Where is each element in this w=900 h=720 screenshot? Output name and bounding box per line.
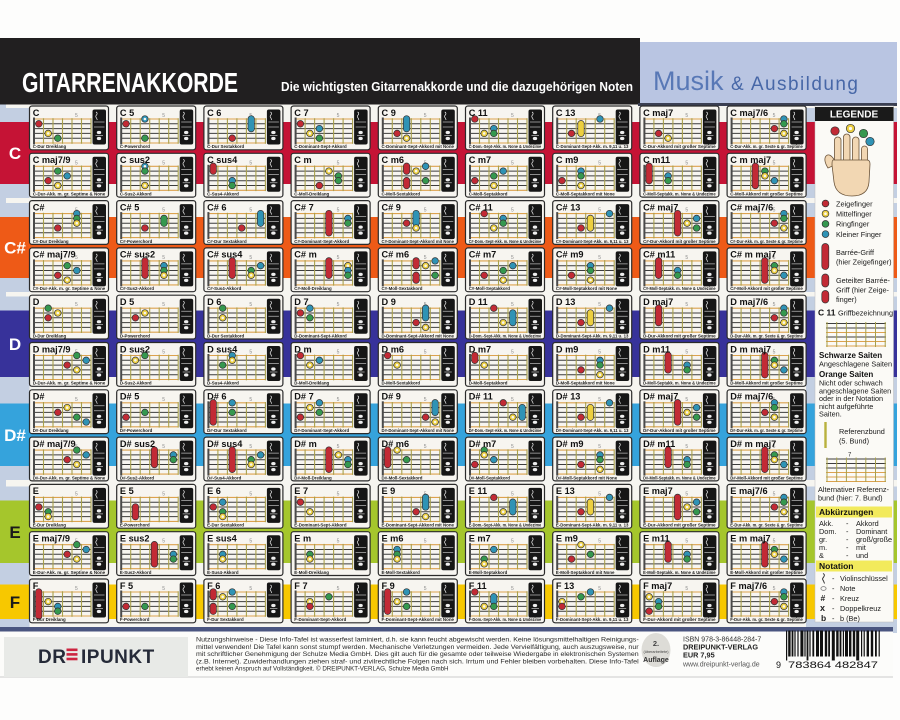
svg-text:D# maj7/6: D# maj7/6: [730, 392, 773, 402]
svg-text:C m maj7: C m maj7: [730, 155, 771, 165]
svg-text:C# m9: C# m9: [556, 250, 584, 260]
svg-text:Die wichtigsten Gitarrenakkord: Die wichtigsten Gitarrenakkorde und die …: [281, 79, 633, 94]
svg-text:www.dreipunkt-verlag.de: www.dreipunkt-verlag.de: [682, 662, 760, 669]
svg-text:C# m maj7: C# m maj7: [730, 250, 776, 260]
svg-text:C 5: C 5: [120, 108, 134, 118]
svg-text:D-Moll-Dreiklang: D-Moll-Dreiklang: [294, 381, 329, 386]
svg-text:D# m9: D# m9: [556, 439, 584, 449]
svg-text:E m9: E m9: [556, 534, 578, 544]
svg-text:D#-Dominant-Sept-Akkord mit No: D#-Dominant-Sept-Akkord mit None: [382, 428, 455, 433]
svg-text:E maj7: E maj7: [643, 486, 673, 496]
svg-text:E m: E m: [294, 534, 311, 544]
svg-text:E-Dur-Akk. m. gr. Sexte & gr.: E-Dur-Akk. m. gr. Sexte & gr. Septime: [730, 523, 803, 528]
svg-text:D-Moll-Septakk. m. None & Unde: D-Moll-Septakk. m. None & Undezime: [643, 381, 716, 386]
svg-text:D#-Moll-Septakk. m. None & Und: D#-Moll-Septakk. m. None & Undezime: [643, 475, 716, 480]
svg-text:E-Dominant-Sept-Akkord: E-Dominant-Sept-Akkord: [294, 523, 347, 528]
svg-text:C#: C#: [4, 239, 26, 258]
svg-text:D#-Dominant-Sept-Akkord: D#-Dominant-Sept-Akkord: [294, 428, 349, 433]
svg-text:C#-Dominant-Sept-Akkord: C#-Dominant-Sept-Akkord: [294, 239, 349, 244]
svg-text:D-Dominant-Sept-Akkord: D-Dominant-Sept-Akkord: [294, 333, 347, 338]
svg-text:E-Powerchord: E-Powerchord: [120, 523, 150, 528]
svg-text:D-Dur-Akkord mit großer Septim: D-Dur-Akkord mit großer Septime: [643, 333, 716, 338]
svg-text:C-Dom.-Sept-Akk. m. None & Und: C-Dom.-Sept-Akk. m. None & Undezime: [469, 144, 542, 149]
svg-text:F 9: F 9: [382, 581, 395, 591]
svg-text:C-Sus4-Akkord: C-Sus4-Akkord: [207, 192, 239, 197]
svg-text:C 13: C 13: [556, 108, 575, 118]
svg-text:E m7: E m7: [469, 534, 491, 544]
svg-text:D# 7: D# 7: [294, 392, 313, 402]
svg-text:D: D: [9, 335, 21, 354]
svg-text:C#-Dur Dreiklang: C#-Dur Dreiklang: [33, 239, 69, 244]
svg-text:D 13: D 13: [556, 297, 575, 307]
svg-text:Griffbezeichnung: Griffbezeichnung: [838, 309, 893, 318]
svg-text:C#-Moll-Sextakkord: C#-Moll-Sextakkord: [382, 286, 423, 291]
svg-text:F maj7/6: F maj7/6: [730, 581, 767, 591]
svg-text:C-Moll-Sextakkord: C-Moll-Sextakkord: [382, 192, 421, 197]
svg-text:D# 6: D# 6: [207, 392, 226, 402]
svg-text:b: b: [821, 613, 826, 623]
svg-text:C-Powerchord: C-Powerchord: [120, 144, 150, 149]
svg-text:&: &: [819, 551, 824, 560]
svg-text:D#-Moll-Dreiklang: D#-Moll-Dreiklang: [294, 475, 332, 480]
svg-text:Notation: Notation: [819, 561, 853, 571]
svg-text:E-Dominant-Sept-Akkord mit Non: E-Dominant-Sept-Akkord mit None: [382, 523, 455, 528]
svg-text:F 7: F 7: [294, 581, 307, 591]
svg-text:#: #: [821, 593, 826, 603]
svg-text:C#-Dur-Akkord mit großer Septi: C#-Dur-Akkord mit großer Septime: [643, 239, 716, 244]
svg-text:E-Moll-Dreiklang: E-Moll-Dreiklang: [294, 570, 329, 575]
svg-text:D# maj7: D# maj7: [643, 392, 678, 402]
svg-text:F-Dominant-Sept-Akkord mit Non: F-Dominant-Sept-Akkord mit None: [382, 617, 455, 622]
svg-text:E-Sus2-Akkord: E-Sus2-Akkord: [120, 570, 152, 575]
svg-text:E sus2: E sus2: [120, 534, 150, 544]
svg-text:D#-Moll-Septakkord mit None: D#-Moll-Septakkord mit None: [556, 475, 618, 480]
svg-text:C 6: C 6: [207, 108, 221, 118]
svg-text:D#-Dur-Akk. m. gr. Sexte & gr.: D#-Dur-Akk. m. gr. Sexte & gr. Septime: [730, 428, 803, 433]
svg-text:(überarbeitete): (überarbeitete): [643, 650, 669, 654]
svg-text:D-Moll-Septakkord: D-Moll-Septakkord: [469, 381, 508, 386]
svg-text:C#-Dur Sextakkord: C#-Dur Sextakkord: [207, 239, 247, 244]
svg-text:(5. Bund): (5. Bund): [839, 437, 869, 446]
svg-text:C-Dur Dreiklang: C-Dur Dreiklang: [33, 144, 67, 149]
svg-text:E m6: E m6: [382, 534, 404, 544]
svg-text:D# 5: D# 5: [120, 392, 139, 402]
svg-text:D#-Moll-Sextakkord: D#-Moll-Sextakkord: [382, 475, 423, 480]
svg-text:Ringfinger: Ringfinger: [836, 220, 870, 229]
svg-text:D: D: [33, 297, 40, 307]
svg-text:D#-Dur-Akk. m. gr. Septime & N: D#-Dur-Akk. m. gr. Septime & None: [33, 475, 106, 480]
svg-text:D#-Dom.-Sept-Akk. m. None & Un: D#-Dom.-Sept-Akk. m. None & Undezime: [469, 428, 542, 433]
svg-text:9: 9: [776, 660, 781, 670]
svg-text:C# m7: C# m7: [469, 250, 497, 260]
svg-text:F-Dom.-Sept-Akk. m. None & Und: F-Dom.-Sept-Akk. m. None & Undezime: [469, 617, 542, 622]
svg-text:D-Dur Dreiklang: D-Dur Dreiklang: [33, 333, 67, 338]
svg-text:Musik: Musik: [653, 66, 724, 96]
svg-text:Zeigefinger: Zeigefinger: [836, 199, 873, 208]
svg-text:Angeschlagene Saiten: Angeschlagene Saiten: [819, 360, 892, 369]
svg-text:D#-Dur Sextakkord: D#-Dur Sextakkord: [207, 428, 247, 433]
svg-text:D# 9: D# 9: [382, 392, 401, 402]
svg-text:und: und: [856, 551, 868, 560]
svg-text:C-Dominant-Sept-Akkord: C-Dominant-Sept-Akkord: [294, 144, 347, 149]
svg-text:LEGENDE: LEGENDE: [830, 110, 879, 121]
svg-text:mittel verwenden! Die Tafel ka: mittel verwenden! Die Tafel kann sonst s…: [196, 644, 639, 651]
svg-text:D#-Moll-Akkord mit großer Sept: D#-Moll-Akkord mit großer Septime: [730, 475, 803, 480]
svg-text:F: F: [33, 581, 39, 591]
svg-text:C sus2: C sus2: [120, 155, 150, 165]
svg-text:D# maj7/9: D# maj7/9: [33, 439, 76, 449]
svg-text:C-Dur-Akk. m. gr. Sexte & gr.: C-Dur-Akk. m. gr. Sexte & gr. Septime: [730, 144, 803, 149]
svg-text:C#-Dom.-Sept-Akk. m. None & Un: C#-Dom.-Sept-Akk. m. None & Undezime: [469, 239, 542, 244]
svg-text:C#-Sus4-Akkord: C#-Sus4-Akkord: [207, 286, 241, 291]
svg-text:D#-Powerchord: D#-Powerchord: [120, 428, 153, 433]
svg-text:C# 6: C# 6: [207, 202, 226, 212]
svg-text:erhebt keinen Anspruch auf Vol: erhebt keinen Anspruch auf Vollständigke…: [196, 666, 449, 673]
svg-text:C# maj7: C# maj7: [643, 202, 678, 212]
svg-text:D sus4: D sus4: [207, 344, 238, 354]
svg-text:& Ausbildung: & Ausbildung: [731, 74, 858, 95]
svg-text:D maj7: D maj7: [643, 297, 673, 307]
svg-text:C#-Moll-Akkord mit großer Sept: C#-Moll-Akkord mit großer Septime: [730, 286, 803, 291]
svg-text:D#-Dur-Akkord mit großer Septi: D#-Dur-Akkord mit großer Septime: [643, 428, 716, 433]
svg-text:F 5: F 5: [120, 581, 133, 591]
svg-text:D-Moll-Sextakkord: D-Moll-Sextakkord: [382, 381, 421, 386]
svg-text:(z.B. Internet). Zuwiderhandlu: (z.B. Internet). Zuwiderhandlungen ziehe…: [196, 658, 639, 665]
svg-text:E 5: E 5: [120, 486, 134, 496]
svg-text:C#-Sus2-Akkord: C#-Sus2-Akkord: [120, 286, 154, 291]
svg-text:D# 11: D# 11: [469, 392, 493, 402]
svg-text:C#-Dominant-Sept-Akkord mit No: C#-Dominant-Sept-Akkord mit None: [382, 239, 455, 244]
svg-text:F-Dominant-Sept-Akk. m. 9,11 u: F-Dominant-Sept-Akk. m. 9,11 u. 13: [556, 617, 629, 622]
svg-text:C# m6: C# m6: [382, 250, 410, 260]
svg-text:E-Sus4-Akkord: E-Sus4-Akkord: [207, 570, 239, 575]
svg-text:D-Dom.-Sept-Akk. m. None & Und: D-Dom.-Sept-Akk. m. None & Undezime: [469, 333, 542, 338]
svg-text:E-Dur-Akk. m. gr. Septime & No: E-Dur-Akk. m. gr. Septime & None: [33, 570, 106, 575]
svg-text:Nutzungshinweise - Diese Info-: Nutzungshinweise - Diese Info-Tafel ist …: [196, 637, 639, 644]
svg-text:C 7: C 7: [294, 108, 308, 118]
svg-text:D#-Dur Dreiklang: D#-Dur Dreiklang: [33, 428, 69, 433]
svg-text:C-Dur Sextakkord: C-Dur Sextakkord: [207, 144, 244, 149]
svg-text:D 6: D 6: [207, 297, 221, 307]
svg-text:D m6: D m6: [382, 344, 404, 354]
svg-text:F-Powerchord: F-Powerchord: [120, 617, 150, 622]
svg-text:C m11: C m11: [643, 155, 670, 165]
svg-text:C# 9: C# 9: [382, 202, 401, 212]
svg-text:D# m7: D# m7: [469, 439, 497, 449]
svg-text:Barrée-Griff: Barrée-Griff: [836, 248, 875, 257]
svg-text:E-Dur Dreiklang: E-Dur Dreiklang: [33, 523, 66, 528]
svg-text:Referenzbund: Referenzbund: [839, 427, 885, 436]
svg-text:D maj7/9: D maj7/9: [33, 344, 71, 354]
svg-text:E maj7/6: E maj7/6: [730, 486, 767, 496]
svg-text:D-Dur-Akk. m. gr. Septime & No: D-Dur-Akk. m. gr. Septime & None: [33, 381, 106, 386]
svg-text:C-Dominant-Sept-Akk. m. 9,11 u: C-Dominant-Sept-Akk. m. 9,11 u. 13: [556, 144, 629, 149]
svg-text:C#-Powerchord: C#-Powerchord: [120, 239, 153, 244]
svg-text:D-Sus4-Akkord: D-Sus4-Akkord: [207, 381, 239, 386]
svg-text:E-Moll-Septakk. m. None & Unde: E-Moll-Septakk. m. None & Undezime: [643, 570, 716, 575]
svg-text:D m maj7: D m maj7: [730, 344, 771, 354]
svg-text:E m11: E m11: [643, 534, 670, 544]
svg-text:C: C: [9, 144, 21, 163]
svg-text:C 11: C 11: [818, 308, 836, 318]
svg-text:D m7: D m7: [469, 344, 491, 354]
svg-text:E 6: E 6: [207, 486, 221, 496]
svg-text:D-Dur-Akk. m. gr. Sexte & gr.: D-Dur-Akk. m. gr. Sexte & gr. Septime: [730, 333, 803, 338]
svg-text:E-Dominant-Sept-Akk. m. 9,11 u: E-Dominant-Sept-Akk. m. 9,11 u. 13: [556, 523, 629, 528]
svg-text:D# sus4: D# sus4: [207, 439, 243, 449]
svg-text:C-Moll-Septakkord mit None: C-Moll-Septakkord mit None: [556, 192, 615, 197]
svg-text:Abkürzungen: Abkürzungen: [819, 507, 873, 517]
svg-text:D-Dominant-Sept-Akkord mit Non: D-Dominant-Sept-Akkord mit None: [382, 333, 455, 338]
svg-text:D# m maj7: D# m maj7: [730, 439, 776, 449]
svg-text:D-Sus2-Akkord: D-Sus2-Akkord: [120, 381, 152, 386]
svg-text:C#-Dominant-Sept-Akk. m. 9,11: C#-Dominant-Sept-Akk. m. 9,11 u. 13: [556, 239, 629, 244]
svg-text:C-Dur-Akkord mit großer Septim: C-Dur-Akkord mit großer Septime: [643, 144, 716, 149]
svg-text:D# sus2: D# sus2: [120, 439, 155, 449]
svg-text:2.: 2.: [653, 639, 659, 648]
svg-text:E 7: E 7: [294, 486, 308, 496]
svg-text:F-Dur Dreiklang: F-Dur Dreiklang: [33, 617, 66, 622]
svg-text:Auflage: Auflage: [643, 657, 669, 664]
svg-text:783864 482847: 783864 482847: [788, 660, 878, 670]
svg-text:D#-Moll-Septakkord: D#-Moll-Septakkord: [469, 475, 511, 480]
svg-text:C-Sus2-Akkord: C-Sus2-Akkord: [120, 192, 152, 197]
svg-text:(hier Zeigefinger): (hier Zeigefinger): [836, 258, 892, 267]
svg-text:C sus4: C sus4: [207, 155, 238, 165]
svg-text:Geteilter Barrée-: Geteilter Barrée-: [836, 276, 891, 285]
svg-text:E: E: [9, 523, 20, 542]
svg-text:D# 13: D# 13: [556, 392, 581, 402]
svg-text:C m9: C m9: [556, 155, 578, 165]
svg-text:D#-Sus4-Akkord: D#-Sus4-Akkord: [207, 475, 241, 480]
svg-text:Violinschlüssel: Violinschlüssel: [840, 574, 888, 583]
svg-text:C-Dominant-Sept-Akkord mit Non: C-Dominant-Sept-Akkord mit None: [382, 144, 455, 149]
svg-text:E 11: E 11: [469, 486, 487, 496]
svg-text:E 9: E 9: [382, 486, 396, 496]
svg-text:C#-Dur-Akk. m. gr. Sexte & gr.: C#-Dur-Akk. m. gr. Sexte & gr. Septime: [730, 239, 803, 244]
svg-text:F: F: [10, 593, 20, 612]
svg-text:E-Moll-Septakkord mit None: E-Moll-Septakkord mit None: [556, 570, 615, 575]
svg-text:Doppelkreuz: Doppelkreuz: [840, 604, 881, 613]
svg-text:D#-Dominant-Sept-Akk. m. 9,11: D#-Dominant-Sept-Akk. m. 9,11 u. 13: [556, 428, 629, 433]
svg-text:C# 13: C# 13: [556, 202, 581, 212]
svg-text:D m11: D m11: [643, 344, 670, 354]
svg-text:C# 7: C# 7: [294, 202, 313, 212]
svg-text:D-Moll-Septakkord mit None: D-Moll-Septakkord mit None: [556, 381, 615, 386]
svg-text:E-Moll-Septakkord: E-Moll-Septakkord: [469, 570, 508, 575]
svg-text:D-Dominant-Sept-Akk. m. 9,11 u: D-Dominant-Sept-Akk. m. 9,11 u. 13: [556, 333, 629, 338]
svg-text:GITARRENAKKORDE: GITARRENAKKORDE: [22, 67, 238, 98]
svg-text:C# sus4: C# sus4: [207, 250, 243, 260]
svg-text:C# 5: C# 5: [120, 202, 139, 212]
svg-text:D-Moll-Akkord mit großer Septi: D-Moll-Akkord mit großer Septime: [730, 381, 803, 386]
svg-text:C#-Moll-Dreiklang: C#-Moll-Dreiklang: [294, 286, 332, 291]
svg-text:Kleiner Finger: Kleiner Finger: [836, 230, 882, 239]
svg-text:C#-Dur-Akk. m. gr. Septime & N: C#-Dur-Akk. m. gr. Septime & None: [33, 286, 106, 291]
svg-text:E-Moll-Akkord mit großer Septi: E-Moll-Akkord mit großer Septime: [730, 570, 803, 575]
svg-text:C-Moll-Septakkord: C-Moll-Septakkord: [469, 192, 508, 197]
svg-text:E-Dom.-Sept-Akk. m. None & Und: E-Dom.-Sept-Akk. m. None & Undezime: [469, 523, 542, 528]
svg-text:E sus4: E sus4: [207, 534, 238, 544]
svg-text:C#-Moll-Septakk. m. None & Und: C#-Moll-Septakk. m. None & Undezime: [643, 286, 716, 291]
svg-text:C# m11: C# m11: [643, 250, 675, 260]
svg-text:EUR 7,95: EUR 7,95: [683, 651, 715, 660]
svg-text:C# maj7/6: C# maj7/6: [730, 202, 773, 212]
svg-text:D# m: D# m: [294, 439, 316, 449]
svg-text:C 11: C 11: [469, 108, 488, 118]
svg-text:D# m6: D# m6: [382, 439, 410, 449]
svg-text:C#: C#: [33, 202, 45, 212]
svg-text:C maj7: C maj7: [643, 108, 673, 118]
svg-text:D#: D#: [33, 392, 45, 402]
svg-text:F-Dur-Akkord mit großer Septim: F-Dur-Akkord mit großer Septime: [643, 617, 716, 622]
svg-text:D 11: D 11: [469, 297, 488, 307]
svg-text:F-Dur Sextakkord: F-Dur Sextakkord: [207, 617, 244, 622]
svg-text:D# m11: D# m11: [643, 439, 675, 449]
svg-text:C# m: C# m: [294, 250, 316, 260]
svg-text:Kreuz: Kreuz: [840, 594, 859, 603]
svg-text:E 13: E 13: [556, 486, 575, 496]
svg-text:D 7: D 7: [294, 297, 308, 307]
svg-text:Saiten.: Saiten.: [819, 410, 842, 419]
svg-text:D maj7/6: D maj7/6: [730, 297, 768, 307]
svg-text:D#-Sus2-Akkord: D#-Sus2-Akkord: [120, 475, 154, 480]
svg-text:x: x: [820, 603, 825, 613]
svg-text:Note: Note: [840, 584, 855, 593]
svg-text:F-Dur-Akk. m. gr. Sexte & gr.: F-Dur-Akk. m. gr. Sexte & gr. Septime: [730, 617, 803, 622]
svg-text:C# sus2: C# sus2: [120, 250, 155, 260]
svg-text:Mittelfinger: Mittelfinger: [836, 210, 872, 219]
svg-text:D 9: D 9: [382, 297, 396, 307]
svg-text:C m7: C m7: [469, 155, 491, 165]
svg-text:E-Dur Sextakkord: E-Dur Sextakkord: [207, 523, 244, 528]
svg-text:bund (hier: 7. Bund): bund (hier: 7. Bund): [818, 494, 883, 503]
svg-text:C# 11: C# 11: [469, 202, 493, 212]
svg-text:D-Powerchord: D-Powerchord: [120, 333, 150, 338]
svg-text:D#: D#: [4, 426, 26, 445]
svg-text:E: E: [33, 486, 39, 496]
svg-text:C#-Moll-Septakkord: C#-Moll-Septakkord: [469, 286, 511, 291]
svg-text:D m9: D m9: [556, 344, 578, 354]
svg-text:C-Dur-Akk. m. gr. Septime & No: C-Dur-Akk. m. gr. Septime & None: [33, 192, 106, 197]
svg-text:F 11: F 11: [469, 581, 487, 591]
svg-text:F maj7: F maj7: [643, 581, 672, 591]
svg-text:F 6: F 6: [207, 581, 220, 591]
svg-text:C-Moll-Dreiklang: C-Moll-Dreiklang: [294, 192, 329, 197]
svg-text:C: C: [33, 108, 40, 118]
svg-text:E-Moll-Sextakkord: E-Moll-Sextakkord: [382, 570, 421, 575]
svg-text:C maj7/6: C maj7/6: [730, 108, 768, 118]
svg-text:C# maj7/9: C# maj7/9: [33, 250, 76, 260]
svg-text:DR: DR: [38, 647, 66, 668]
svg-text:C maj7/9: C maj7/9: [33, 155, 71, 165]
svg-text:C-Moll-Septakk. m. None & Unde: C-Moll-Septakk. m. None & Undezime: [643, 192, 716, 197]
svg-text:D 5: D 5: [120, 297, 134, 307]
svg-text:D m: D m: [294, 344, 311, 354]
svg-text:F-Dominant-Sept-Akkord: F-Dominant-Sept-Akkord: [294, 617, 346, 622]
svg-text:finger): finger): [836, 295, 857, 304]
svg-text:C-Moll-Akkord mit großer Septi: C-Moll-Akkord mit großer Septime: [730, 192, 803, 197]
svg-text:C 9: C 9: [382, 108, 396, 118]
svg-text:E maj7/9: E maj7/9: [33, 534, 70, 544]
svg-text:D sus2: D sus2: [120, 344, 150, 354]
svg-text:C m: C m: [294, 155, 311, 165]
svg-text:C#-Moll-Septakkord mit None: C#-Moll-Septakkord mit None: [556, 286, 618, 291]
svg-text:IPUNKT: IPUNKT: [81, 647, 155, 668]
svg-text:mit schriftlicher Genehmigung: mit schriftlicher Genehmigung der Schulz…: [196, 651, 639, 658]
svg-text:E m maj7: E m maj7: [730, 534, 770, 544]
svg-text:F 13: F 13: [556, 581, 574, 591]
svg-text:D-Dur Sextakkord: D-Dur Sextakkord: [207, 333, 244, 338]
svg-text:b (Be): b (Be): [840, 614, 860, 623]
svg-text:E-Dur-Akkord mit großer Septim: E-Dur-Akkord mit großer Septime: [643, 523, 716, 528]
svg-text:Griff (hier Zeige-: Griff (hier Zeige-: [836, 286, 890, 295]
svg-text:C m6: C m6: [382, 155, 404, 165]
